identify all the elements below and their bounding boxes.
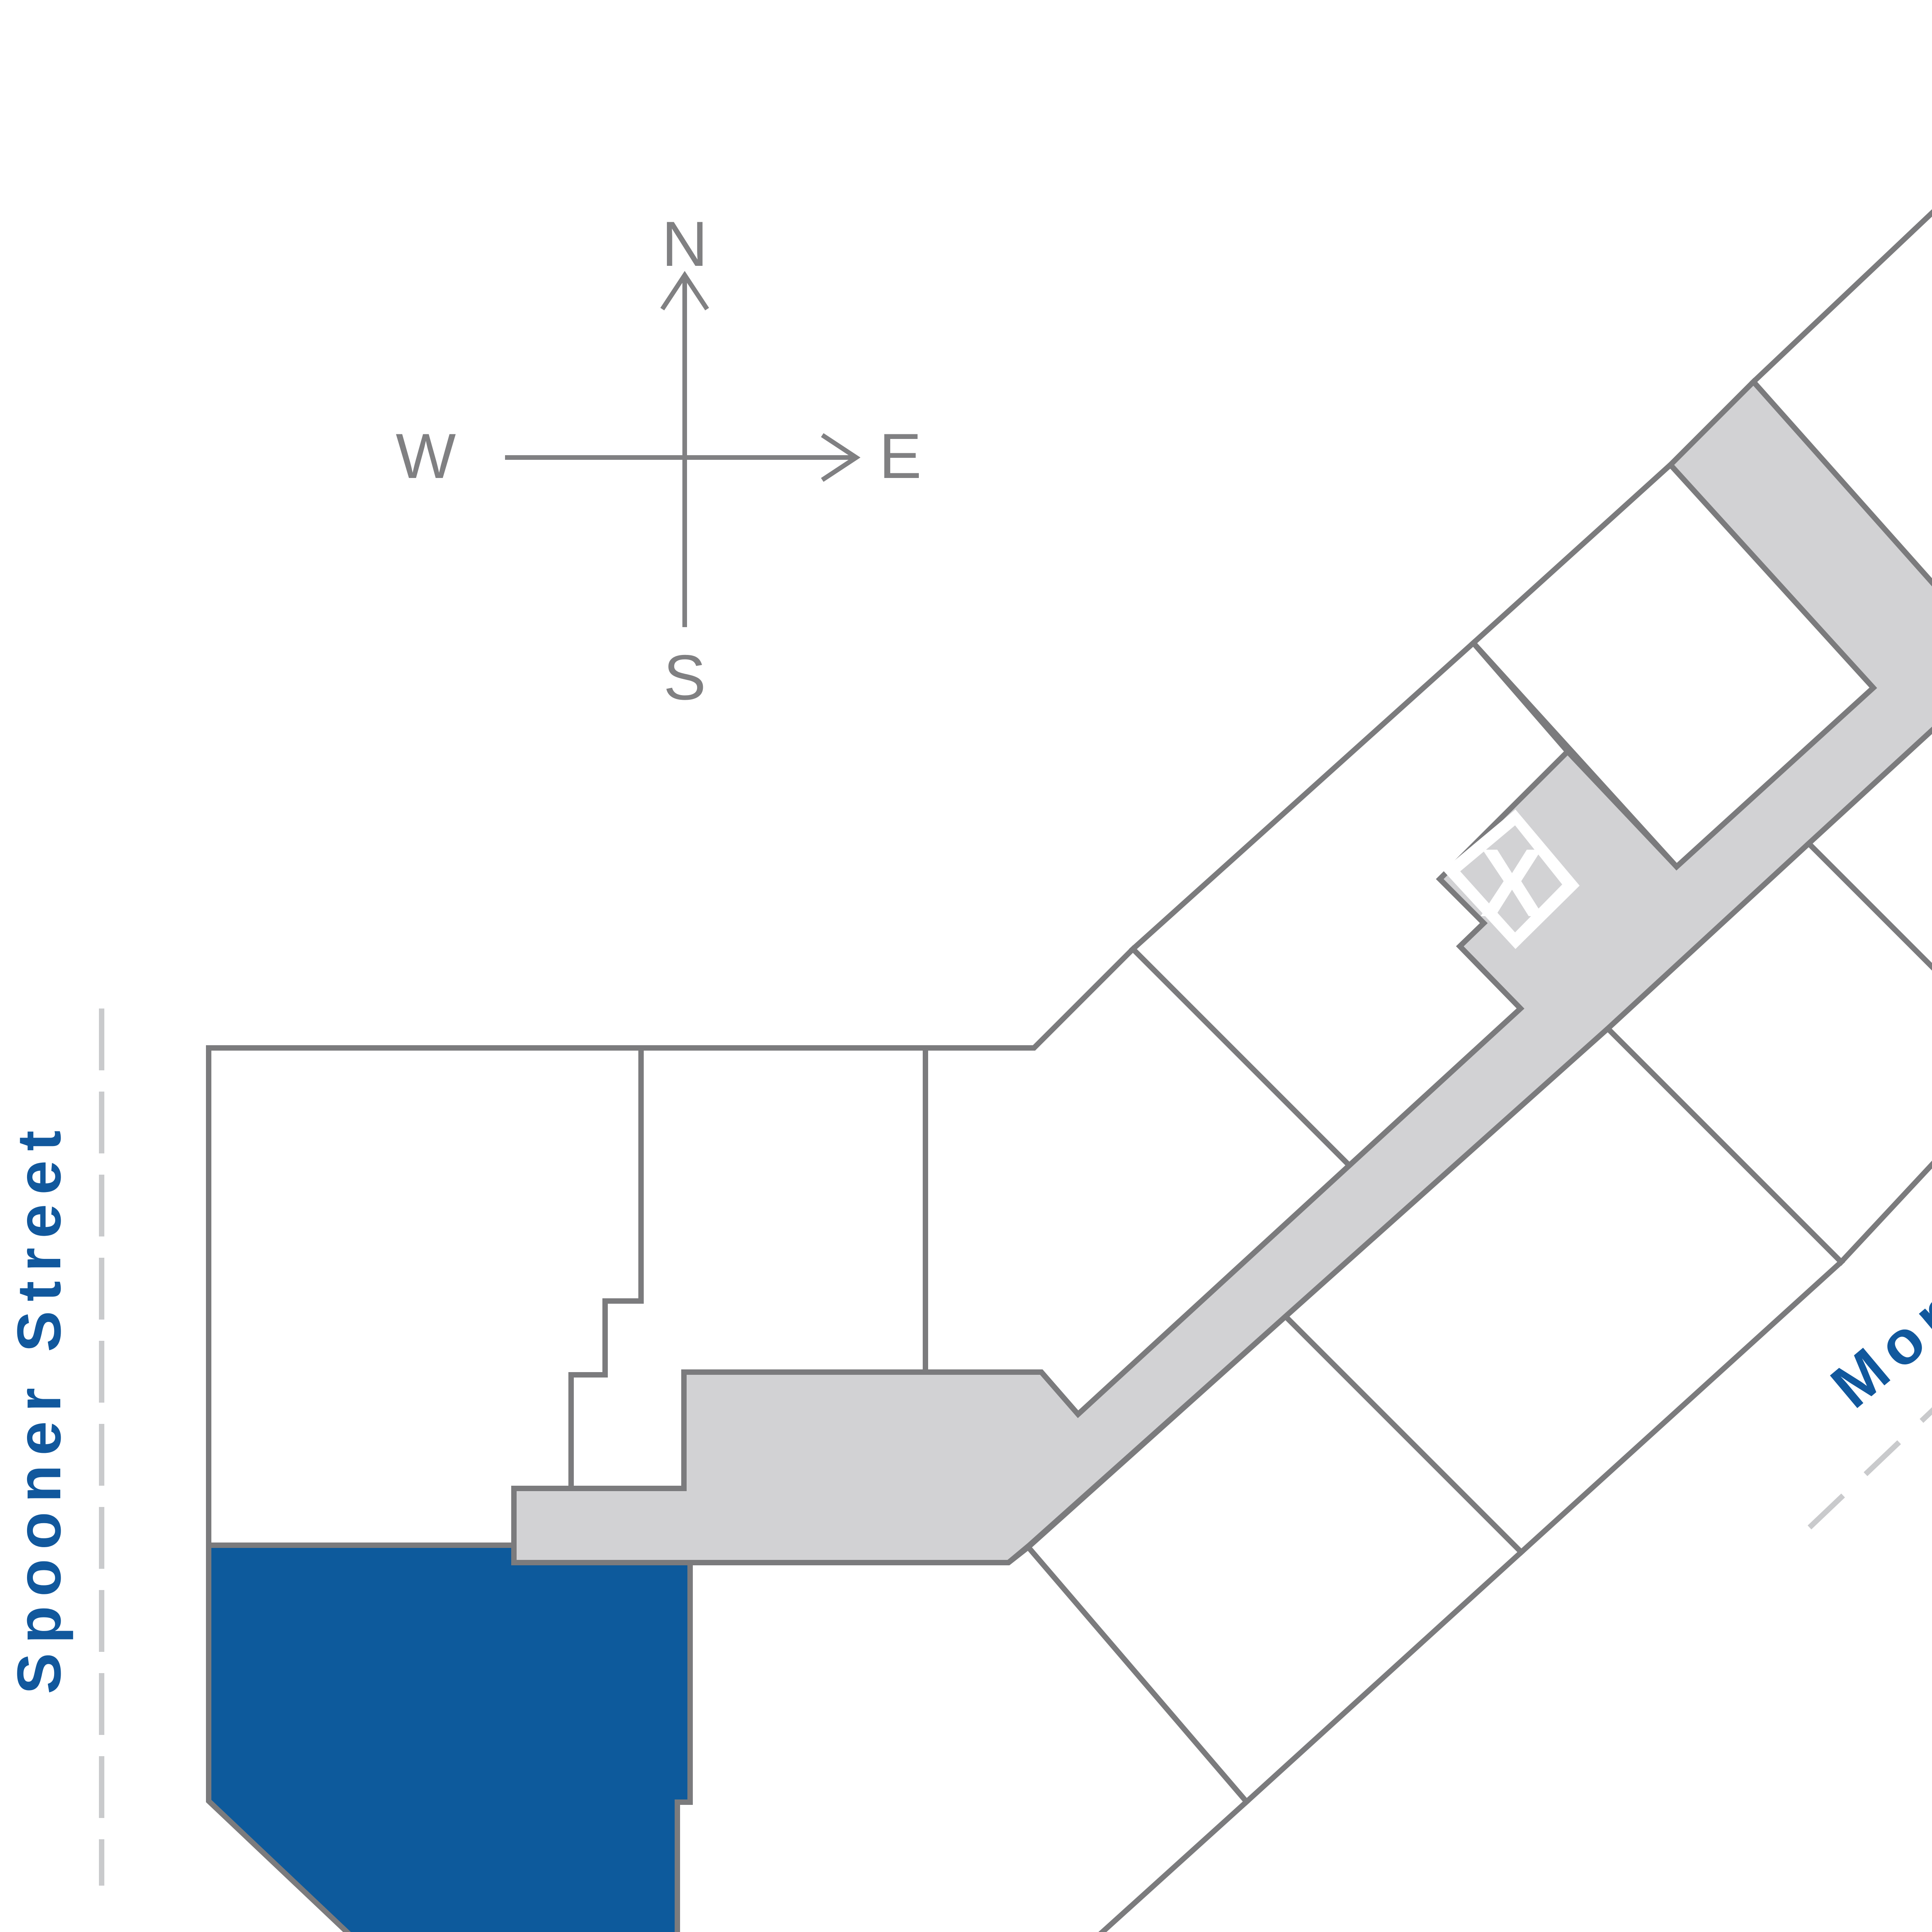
svg-text:N: N: [662, 208, 707, 279]
svg-text:W: W: [396, 420, 456, 492]
svg-text:X: X: [1480, 829, 1544, 937]
svg-text:Spooner Street: Spooner Street: [4, 1121, 73, 1694]
svg-text:E: E: [879, 420, 922, 492]
svg-text:S: S: [663, 642, 706, 713]
